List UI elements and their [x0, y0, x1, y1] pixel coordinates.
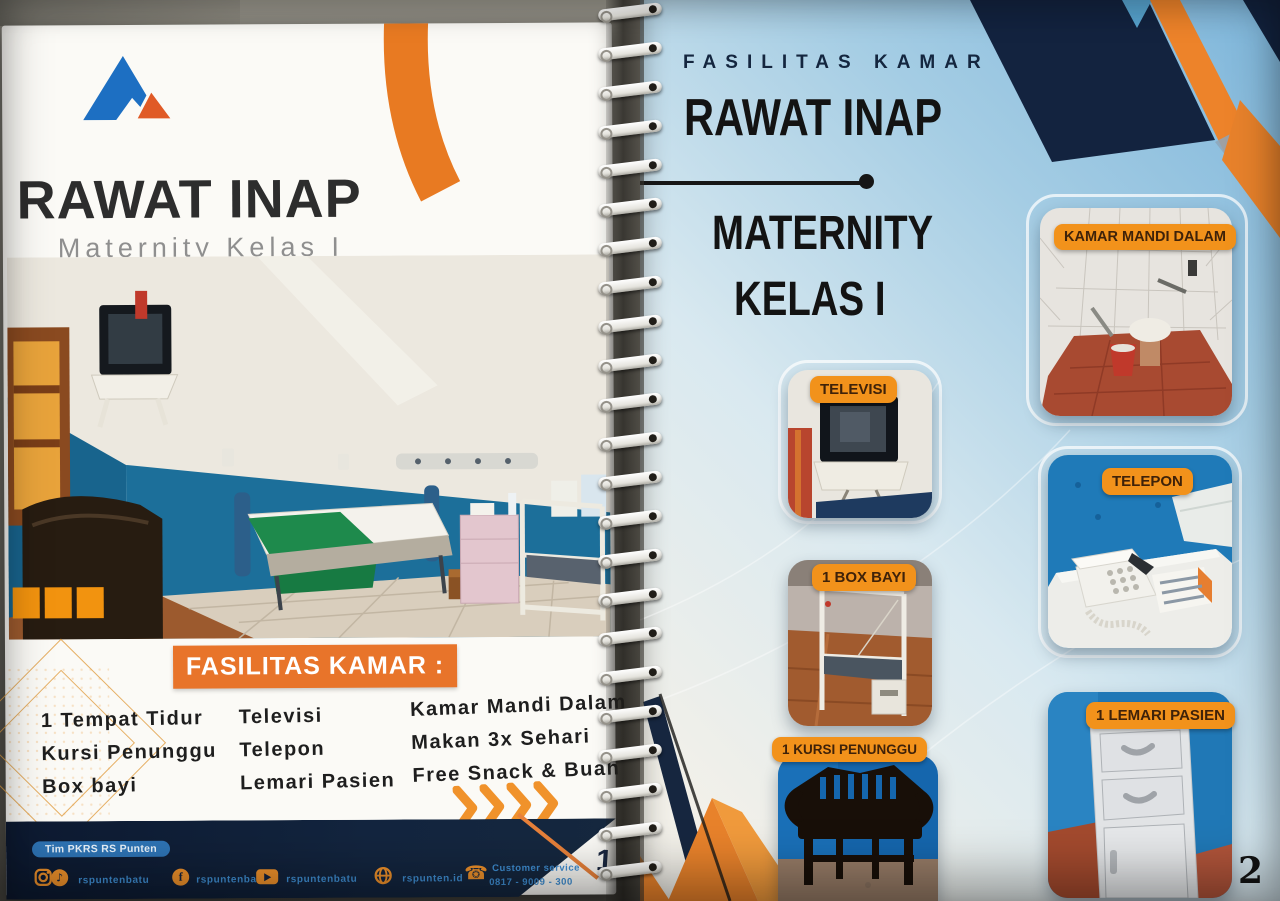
customer-service-label: Customer service — [492, 863, 580, 874]
tiktok-icon: ♪ — [51, 869, 68, 886]
room-photo — [7, 254, 611, 639]
facility-line: Telepon — [239, 731, 395, 767]
social-handle-youtube: rspuntenbatu — [286, 874, 357, 885]
facilities-banner: FASILITAS KAMAR : — [173, 644, 457, 688]
facilities-col-1: 1 Tempat Tidur Kursi Penunggu Box bayi — [41, 702, 218, 804]
facility-line: Kursi Penunggu — [41, 735, 217, 771]
customer-service-phone: 0817 - 9009 - 300 — [489, 877, 573, 888]
phone-icon: ☎ — [464, 862, 488, 884]
title-divider — [640, 181, 865, 185]
facility-line: Televisi — [239, 698, 395, 734]
page-number-2: 2 — [1238, 850, 1263, 892]
facilities-col-2: Televisi Telepon Lemari Pasien — [239, 698, 396, 800]
left-page-title: RAWAT INAP — [16, 167, 416, 231]
card-kursi-penunggu — [778, 755, 938, 901]
label-lemari-pasien: 1 LEMARI PASIEN — [1086, 702, 1235, 729]
orange-square — [45, 587, 72, 618]
divider-dot — [859, 174, 874, 189]
facility-line: Box bayi — [42, 768, 218, 804]
facilities-col-3: Kamar Mandi Dalam Makan 3x Sehari Free S… — [410, 686, 630, 793]
brochure-photo: RAWAT INAP Maternity Kelas I — [0, 0, 1280, 901]
orange-square — [13, 587, 40, 618]
main-title-line-2: MATERNITY — [712, 210, 988, 258]
team-badge: Tim PKRS RS Punten — [32, 841, 170, 858]
website-text: rspunten.id — [402, 873, 463, 884]
footer-bar: Tim PKRS RS Punten ♪ rspuntenbatu f rspu… — [6, 818, 616, 899]
facility-line: 1 Tempat Tidur — [41, 702, 217, 738]
youtube-play-glyph — [264, 873, 271, 881]
facility-line: Lemari Pasien — [240, 764, 396, 800]
eyebrow-title: FASILITAS KAMAR — [683, 52, 990, 74]
main-title-line-1: RAWAT INAP — [684, 92, 1007, 144]
label-kamar-mandi: KAMAR MANDI DALAM — [1054, 224, 1236, 250]
facebook-icon: f — [172, 869, 189, 886]
right-page: FASILITAS KAMAR RAWAT INAP MATERNITY KEL… — [640, 0, 1280, 901]
orange-square — [77, 587, 104, 618]
label-box-bayi: 1 BOX BAYI — [812, 564, 916, 591]
orange-squares-decor — [13, 587, 109, 624]
label-telepon: TELEPON — [1102, 468, 1193, 495]
background-surface — [0, 0, 240, 26]
label-televisi: TELEVISI — [810, 376, 897, 403]
social-handle-instagram: rspuntenbatu — [78, 875, 149, 886]
hospital-logo — [83, 56, 187, 139]
main-title-line-3: KELAS I — [734, 276, 923, 324]
label-kursi-penunggu: 1 KURSI PENUNGGU — [772, 737, 927, 762]
left-page: RAWAT INAP Maternity Kelas I — [2, 22, 617, 897]
instagram-icon — [34, 868, 52, 886]
globe-icon — [374, 867, 392, 885]
